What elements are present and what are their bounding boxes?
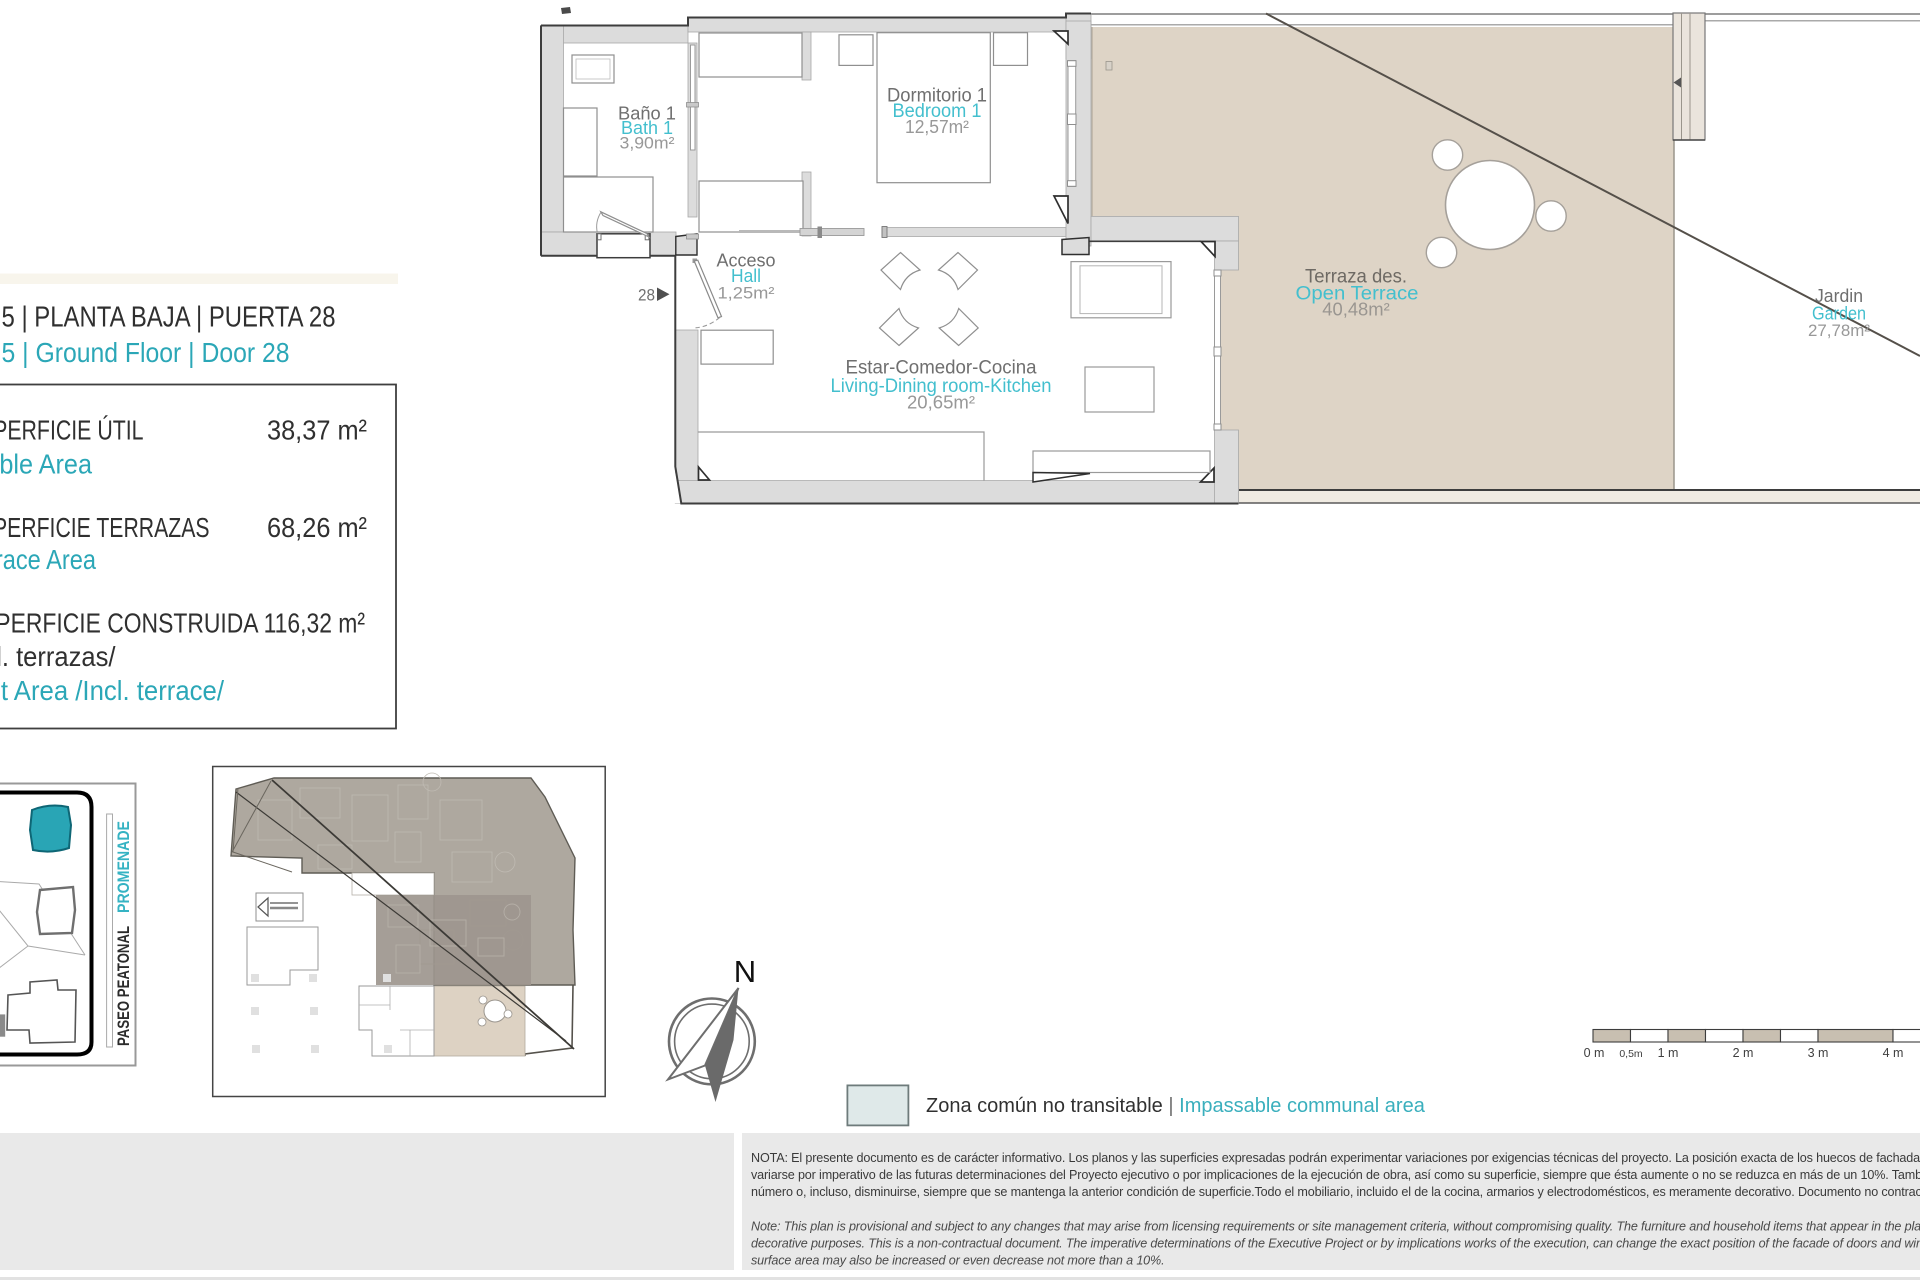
- svg-text:27,78m²: 27,78m²: [1808, 321, 1870, 340]
- svg-text:0 m: 0 m: [1584, 1046, 1605, 1060]
- svg-text:1 m: 1 m: [1658, 1046, 1679, 1060]
- svg-text:38,37 m²: 38,37 m²: [267, 415, 367, 446]
- svg-text:SUPERFICIE CONSTRUIDA 116,32 m: SUPERFICIE CONSTRUIDA 116,32 m²: [0, 608, 365, 639]
- svg-text:Zona común no transitable | Im: Zona común no transitable | Impassable c…: [926, 1095, 1426, 1117]
- svg-text:28: 28: [638, 286, 655, 305]
- svg-text:variarse por imperativo de las: variarse por imperativo de las futuras d…: [751, 1168, 1920, 1182]
- svg-text:decorative purposes. This is a: decorative purposes. This is a non-contr…: [751, 1237, 1920, 1251]
- svg-text:3 m: 3 m: [1808, 1046, 1829, 1060]
- svg-text:N: N: [734, 954, 756, 989]
- svg-text:SUPERFICIE TERRAZAS: SUPERFICIE TERRAZAS: [0, 512, 210, 543]
- svg-text:40,48m²: 40,48m²: [1322, 300, 1390, 320]
- svg-text:Note: This plan is provisional: Note: This plan is provisional and subje…: [751, 1220, 1920, 1234]
- svg-text:5 | Ground Floor | Door 28: 5 | Ground Floor | Door 28: [2, 337, 290, 368]
- svg-text:número o, incluso, disminuirse: número o, incluso, disminuirse, siempre …: [751, 1185, 1920, 1199]
- svg-text:PROMENADE: PROMENADE: [115, 821, 133, 913]
- svg-text:Terrace Area: Terrace Area: [0, 544, 96, 575]
- svg-text:PASEO PEATONAL: PASEO PEATONAL: [115, 926, 133, 1046]
- svg-text:Built Area /Incl. terrace/: Built Area /Incl. terrace/: [0, 675, 224, 706]
- svg-text:NOTA: El presente documento e: NOTA: El presente documento es de caráct…: [751, 1151, 1920, 1165]
- svg-text:/Incl. terrazas/: /Incl. terrazas/: [0, 641, 116, 672]
- svg-text:68,26 m²: 68,26 m²: [267, 512, 367, 543]
- svg-text:4 m: 4 m: [1883, 1046, 1904, 1060]
- svg-text:5 | PLANTA BAJA | PUERTA 28: 5 | PLANTA BAJA | PUERTA 28: [2, 302, 336, 334]
- svg-text:2 m: 2 m: [1733, 1046, 1754, 1060]
- svg-text:0,5m: 0,5m: [1619, 1048, 1643, 1060]
- svg-text:20,65m²: 20,65m²: [907, 393, 975, 413]
- svg-text:1,25m²: 1,25m²: [718, 284, 775, 303]
- svg-text:surface area may also be incre: surface area may also be increased or ev…: [751, 1254, 1164, 1268]
- svg-text:SUPERFICIE ÚTIL: SUPERFICIE ÚTIL: [0, 415, 144, 446]
- svg-text:12,57m²: 12,57m²: [905, 117, 969, 137]
- svg-text:3,90m²: 3,90m²: [620, 133, 675, 152]
- svg-text:Usable Area: Usable Area: [0, 449, 92, 480]
